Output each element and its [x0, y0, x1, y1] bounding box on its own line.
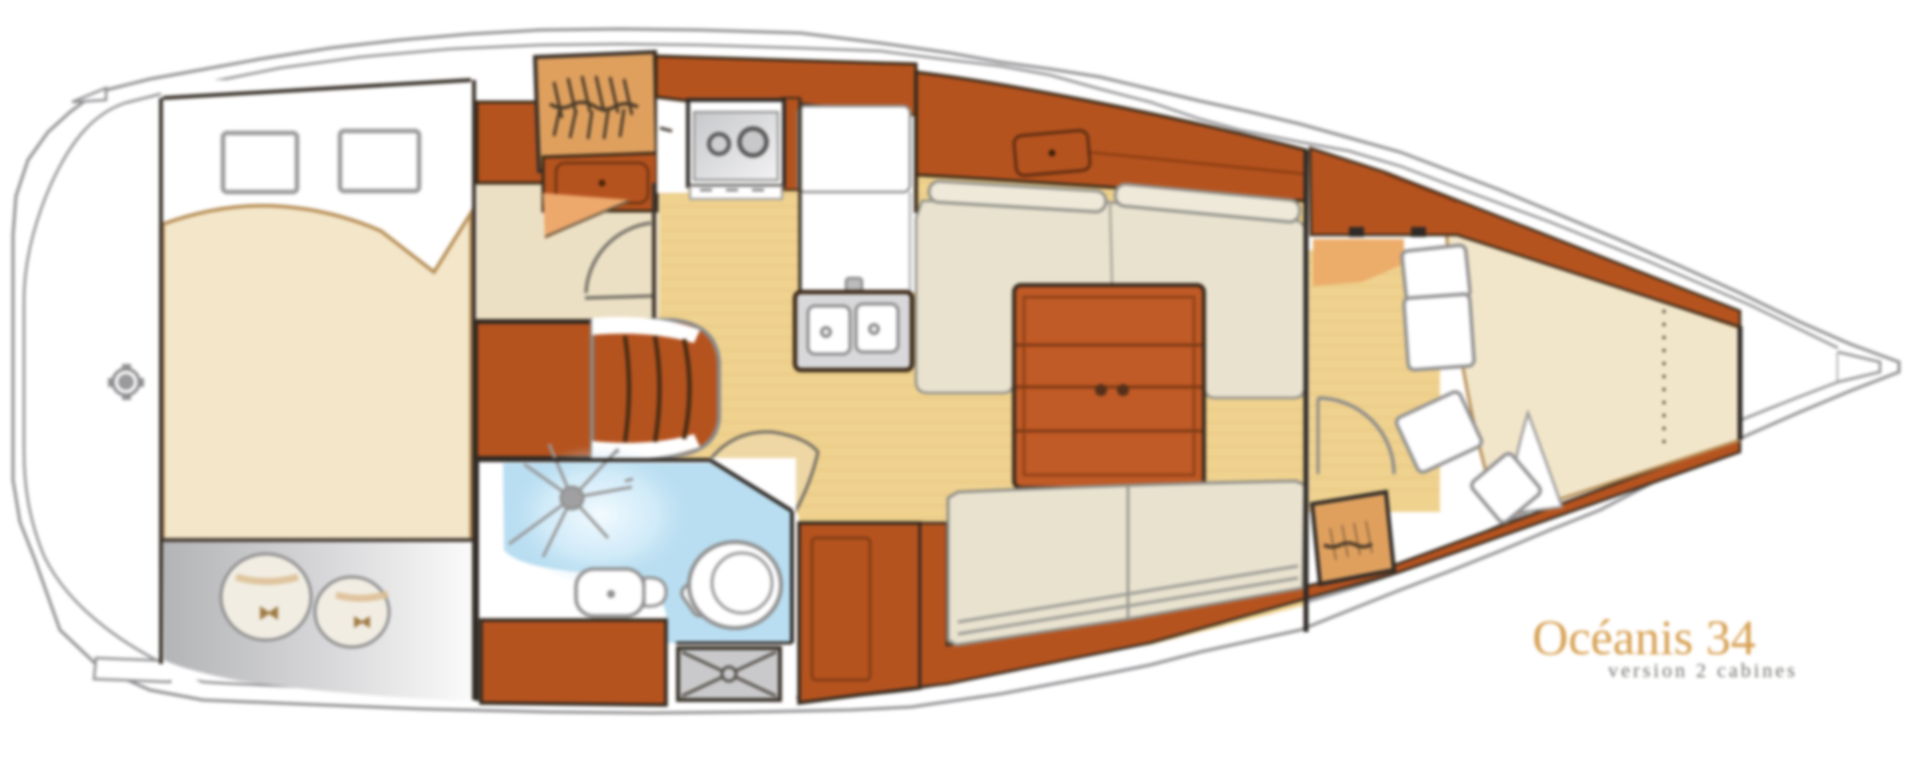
svg-text:Océanis 34: Océanis 34 — [1532, 609, 1756, 665]
svg-text:version 2 cabines: version 2 cabines — [1608, 660, 1798, 682]
